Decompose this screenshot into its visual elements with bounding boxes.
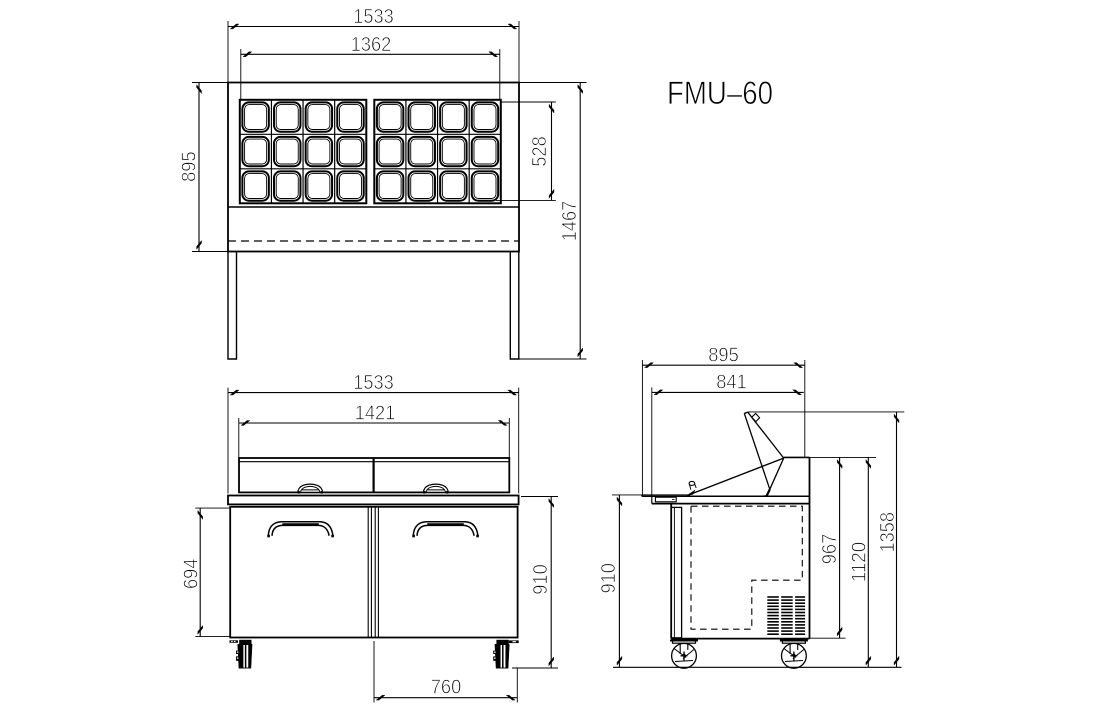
- svg-text:967: 967: [819, 534, 841, 565]
- svg-text:1120: 1120: [848, 542, 870, 583]
- svg-text:1362: 1362: [351, 34, 392, 56]
- svg-text:1467: 1467: [559, 201, 581, 242]
- svg-text:910: 910: [598, 563, 620, 594]
- svg-text:1533: 1533: [353, 372, 394, 394]
- svg-text:895: 895: [178, 151, 200, 182]
- svg-text:841: 841: [716, 372, 747, 394]
- svg-text:528: 528: [529, 136, 551, 167]
- svg-text:895: 895: [708, 345, 739, 367]
- svg-text:FMU–60: FMU–60: [667, 75, 773, 111]
- svg-text:1358: 1358: [877, 512, 899, 553]
- svg-text:760: 760: [431, 677, 462, 699]
- svg-text:694: 694: [181, 559, 203, 590]
- svg-text:1533: 1533: [353, 6, 394, 28]
- svg-text:910: 910: [530, 564, 552, 595]
- svg-text:1421: 1421: [355, 402, 396, 424]
